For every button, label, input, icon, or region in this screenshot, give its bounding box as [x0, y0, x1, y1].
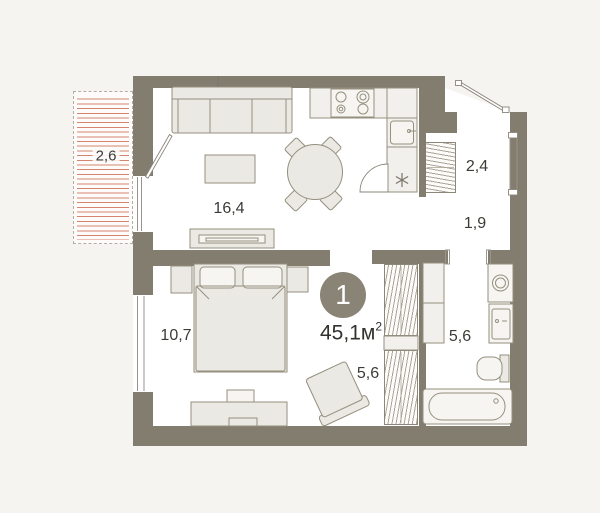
wall-left-mid — [133, 232, 153, 295]
toilet — [477, 355, 509, 382]
room-label-inner-hall: 5,6 — [357, 365, 379, 383]
balcony-door-frame — [138, 177, 142, 231]
floorplan: 2,6 16,4 2,4 1,9 10,7 5,6 5,6 1 45,1м2 — [0, 0, 600, 513]
kitchen-sink — [387, 118, 417, 147]
wall-bath-right — [488, 250, 510, 264]
room-label-entry-hall: 2,4 — [466, 158, 488, 176]
washing-machine — [488, 264, 513, 302]
total-area-value: 45,1 — [320, 322, 361, 345]
bathtub — [423, 389, 512, 424]
tv-stand — [190, 229, 274, 248]
dresser — [191, 390, 287, 426]
door-hinge — [503, 107, 510, 113]
wall-bottom — [133, 426, 527, 446]
pillow — [243, 267, 282, 288]
sofa — [172, 87, 292, 133]
bath-cabinet — [423, 303, 444, 343]
wall-left-upper — [133, 88, 153, 176]
tv — [199, 235, 265, 243]
pillow — [200, 267, 235, 288]
door-frame-tab — [509, 133, 518, 139]
wardrobe-divider — [384, 336, 418, 350]
toilet-bowl — [477, 357, 502, 380]
bedroom-window — [138, 296, 145, 391]
wall-entry-step — [445, 112, 457, 133]
wall-top — [133, 76, 445, 88]
wall-kitchen-hall — [419, 133, 426, 197]
floorplan-drawing — [0, 0, 600, 513]
total-area-label: 45,1м2 — [320, 321, 382, 346]
coffee-table — [205, 155, 255, 183]
fridge — [387, 147, 417, 192]
bed — [194, 264, 287, 372]
dining-table — [288, 145, 343, 200]
total-area-sup: 2 — [375, 320, 382, 334]
wall-left-lower — [133, 392, 153, 426]
tv — [227, 390, 254, 402]
total-area-unit: м — [361, 322, 375, 345]
stove — [331, 89, 374, 117]
apartment-number-badge: 1 — [320, 272, 366, 318]
dining-set — [284, 136, 342, 211]
bath-cabinet — [423, 263, 444, 303]
wall-mid-right — [372, 250, 448, 264]
room-label-bathroom: 5,6 — [449, 328, 471, 346]
window-frame — [138, 296, 145, 391]
room-label-corridor: 1,9 — [464, 215, 486, 233]
nightstand — [171, 266, 192, 293]
bedroom-furniture — [171, 264, 308, 426]
door-frame-tab — [509, 190, 518, 196]
door-hinge — [456, 81, 462, 86]
apartment-number: 1 — [335, 279, 351, 311]
room-label-living-kitchen: 16,4 — [213, 200, 244, 218]
door-swing-arc — [360, 164, 388, 192]
room-label-balcony: 2,6 — [93, 148, 120, 165]
room-label-bedroom: 10,7 — [160, 327, 191, 345]
wall-entry-chunk — [419, 88, 445, 133]
bathroom-sink — [489, 304, 513, 343]
nightstand — [287, 267, 308, 292]
